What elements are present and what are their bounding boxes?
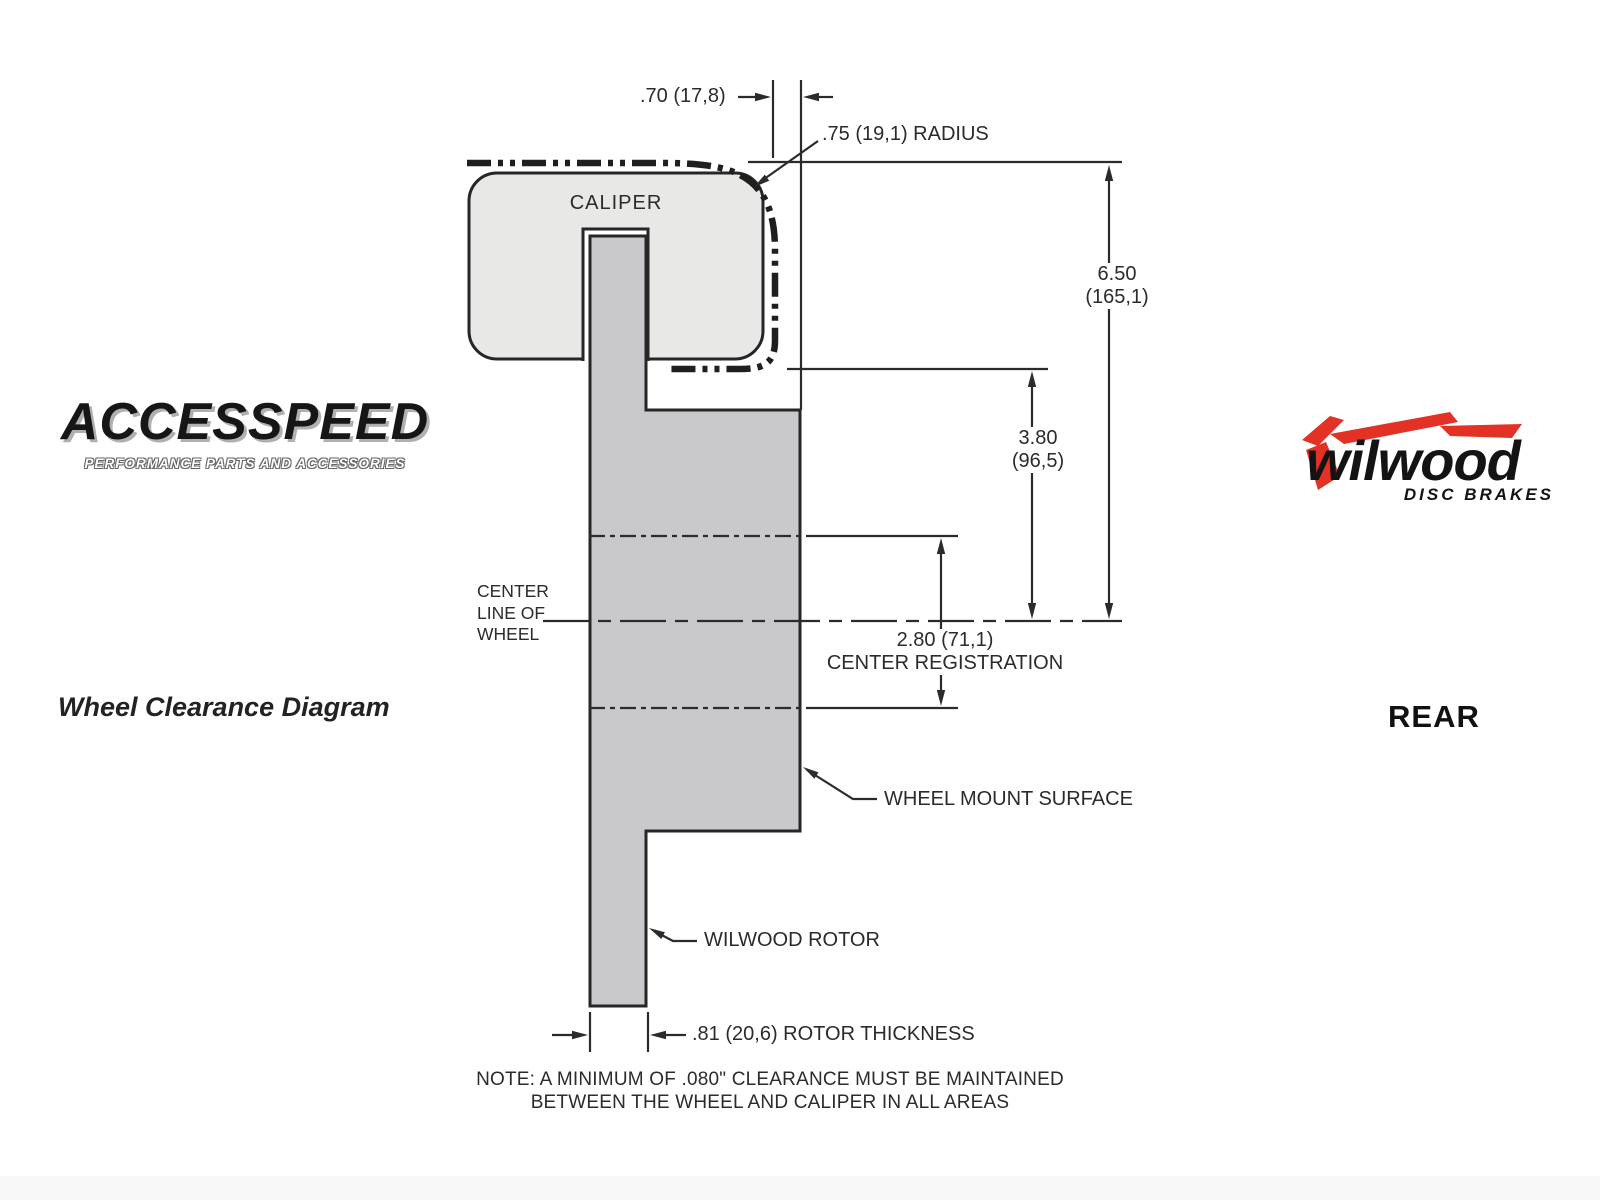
wheel-mount-surface-label: WHEEL MOUNT SURFACE bbox=[884, 788, 1133, 811]
wilwood-rotor-label: WILWOOD ROTOR bbox=[704, 929, 880, 952]
wilwood-wordmark: wilwood bbox=[1306, 429, 1523, 492]
wheel-clearance-diagram-page: CALIPER .70 (17,8) .75 (19,1) RADIUS 6.5… bbox=[0, 0, 1600, 1200]
page-title: Wheel Clearance Diagram bbox=[58, 692, 390, 723]
center-line-label-3: WHEEL bbox=[477, 624, 549, 646]
accesspeed-tagline: PERFORMANCE PARTS AND ACCESSORIES bbox=[55, 456, 435, 471]
dim-mount-mm: (96,5) bbox=[990, 450, 1086, 473]
accesspeed-wordmark: ACCESSPEED bbox=[55, 392, 435, 452]
center-line-label-2: LINE OF bbox=[477, 603, 549, 625]
caliper-label: CALIPER bbox=[469, 192, 763, 215]
dim-mount-inches: 3.80 bbox=[990, 427, 1086, 450]
clearance-note-line2: BETWEEN THE WHEEL AND CALIPER IN ALL ARE… bbox=[420, 1091, 1120, 1114]
center-line-label: CENTER LINE OF WHEEL bbox=[477, 581, 549, 646]
wilwood-tagline: DISC BRAKES bbox=[1404, 485, 1554, 504]
dim-center-registration: 2.80 (71,1) CENTER REGISTRATION bbox=[811, 629, 1079, 675]
dim-overall-height: 6.50 (165,1) bbox=[1064, 263, 1170, 309]
technical-drawing bbox=[0, 0, 1600, 1200]
dim-registration-caption: CENTER REGISTRATION bbox=[816, 652, 1074, 675]
dim-mount-to-center: 3.80 (96,5) bbox=[985, 427, 1091, 473]
dim-registration-value: 2.80 (71,1) bbox=[816, 629, 1074, 652]
dim-rotor-thickness: .81 (20,6) ROTOR THICKNESS bbox=[692, 1023, 975, 1046]
clearance-note: NOTE: A MINIMUM OF .080" CLEARANCE MUST … bbox=[420, 1068, 1120, 1114]
dim-caliper-overhang: .70 (17,8) bbox=[640, 85, 726, 108]
accesspeed-logo: ACCESSPEED PERFORMANCE PARTS AND ACCESSO… bbox=[55, 392, 435, 471]
rear-label: REAR bbox=[1388, 699, 1480, 735]
center-line-label-1: CENTER bbox=[477, 581, 549, 603]
bottom-strip bbox=[0, 1176, 1600, 1200]
clearance-note-line1: NOTE: A MINIMUM OF .080" CLEARANCE MUST … bbox=[420, 1068, 1120, 1091]
dim-radius: .75 (19,1) RADIUS bbox=[822, 123, 989, 146]
dim-overall-mm: (165,1) bbox=[1069, 286, 1165, 309]
wilwood-logo: wilwood DISC BRAKES bbox=[1300, 406, 1560, 506]
dim-overall-inches: 6.50 bbox=[1069, 263, 1165, 286]
